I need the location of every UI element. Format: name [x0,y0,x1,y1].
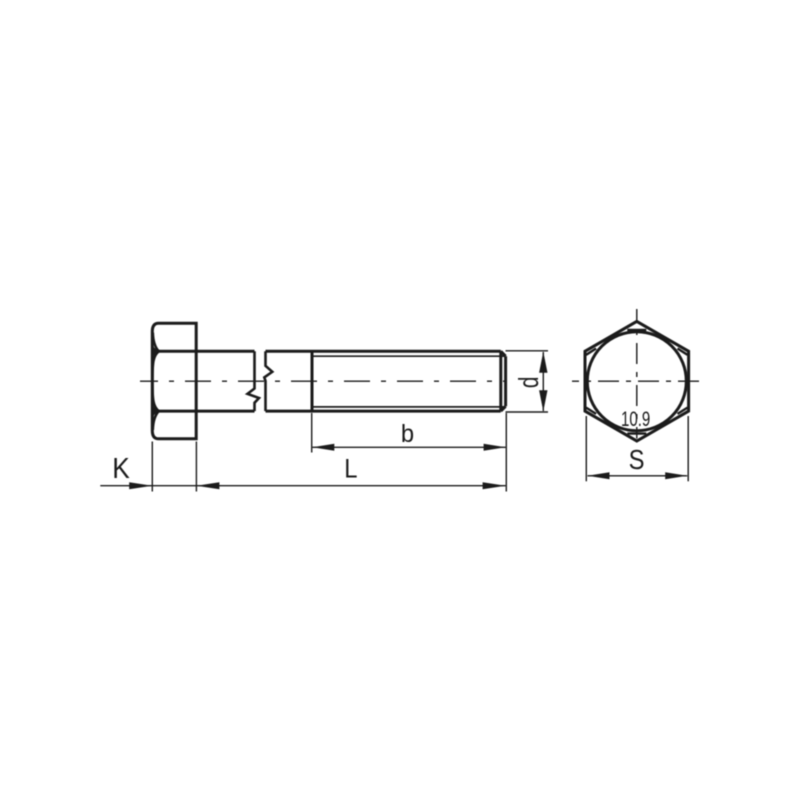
svg-text:L: L [344,454,357,484]
svg-text:10.9: 10.9 [621,407,650,431]
svg-text:K: K [112,452,130,484]
svg-text:S: S [629,443,645,475]
svg-text:d: d [514,377,545,389]
svg-text:b: b [401,420,414,448]
